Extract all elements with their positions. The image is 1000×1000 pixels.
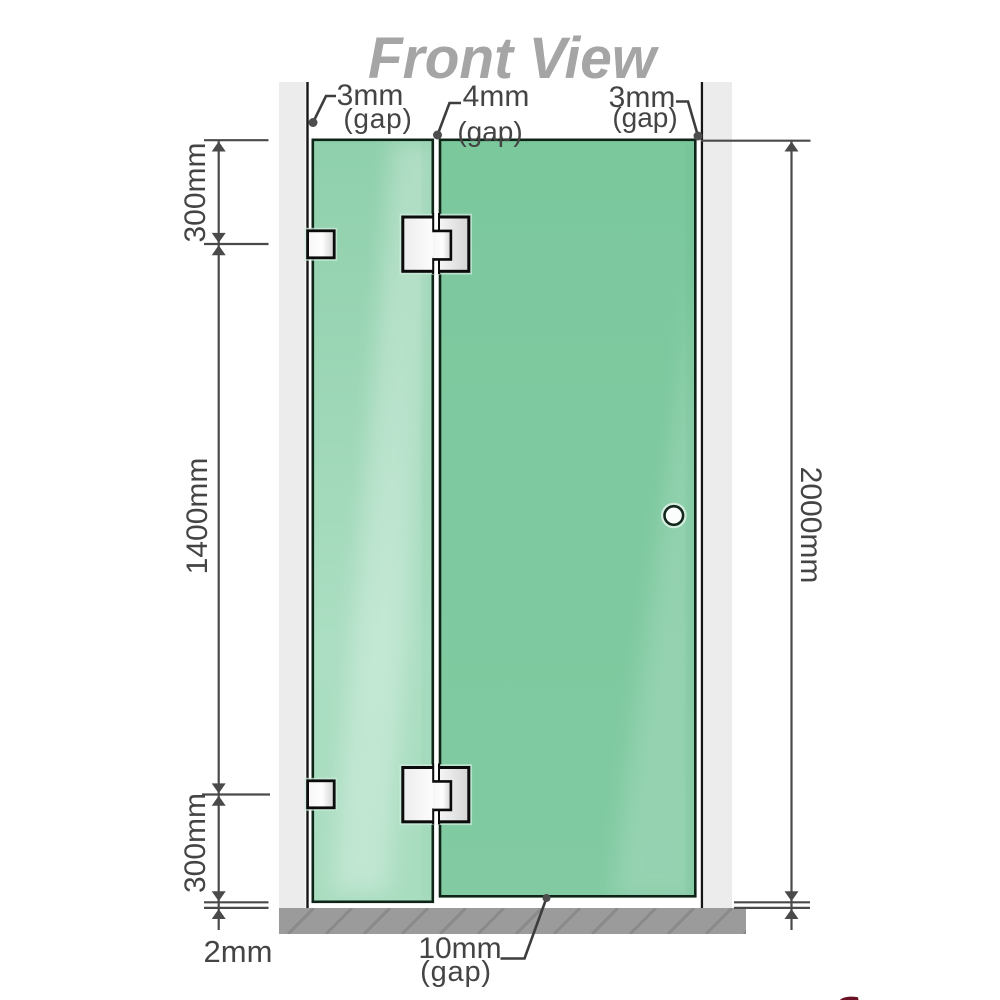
svg-text:2000mm: 2000mm — [794, 467, 827, 584]
svg-text:4mm: 4mm — [463, 80, 530, 113]
svg-text:300mm: 300mm — [179, 793, 212, 893]
svg-text:2mm: 2mm — [204, 934, 273, 969]
svg-text:(gap): (gap) — [457, 116, 522, 147]
svg-text:300mm: 300mm — [179, 142, 212, 242]
svg-text:1400mm: 1400mm — [181, 458, 214, 575]
svg-text:(gap): (gap) — [612, 102, 677, 133]
svg-text:(gap): (gap) — [420, 956, 492, 988]
svg-text:(gap): (gap) — [343, 103, 412, 134]
